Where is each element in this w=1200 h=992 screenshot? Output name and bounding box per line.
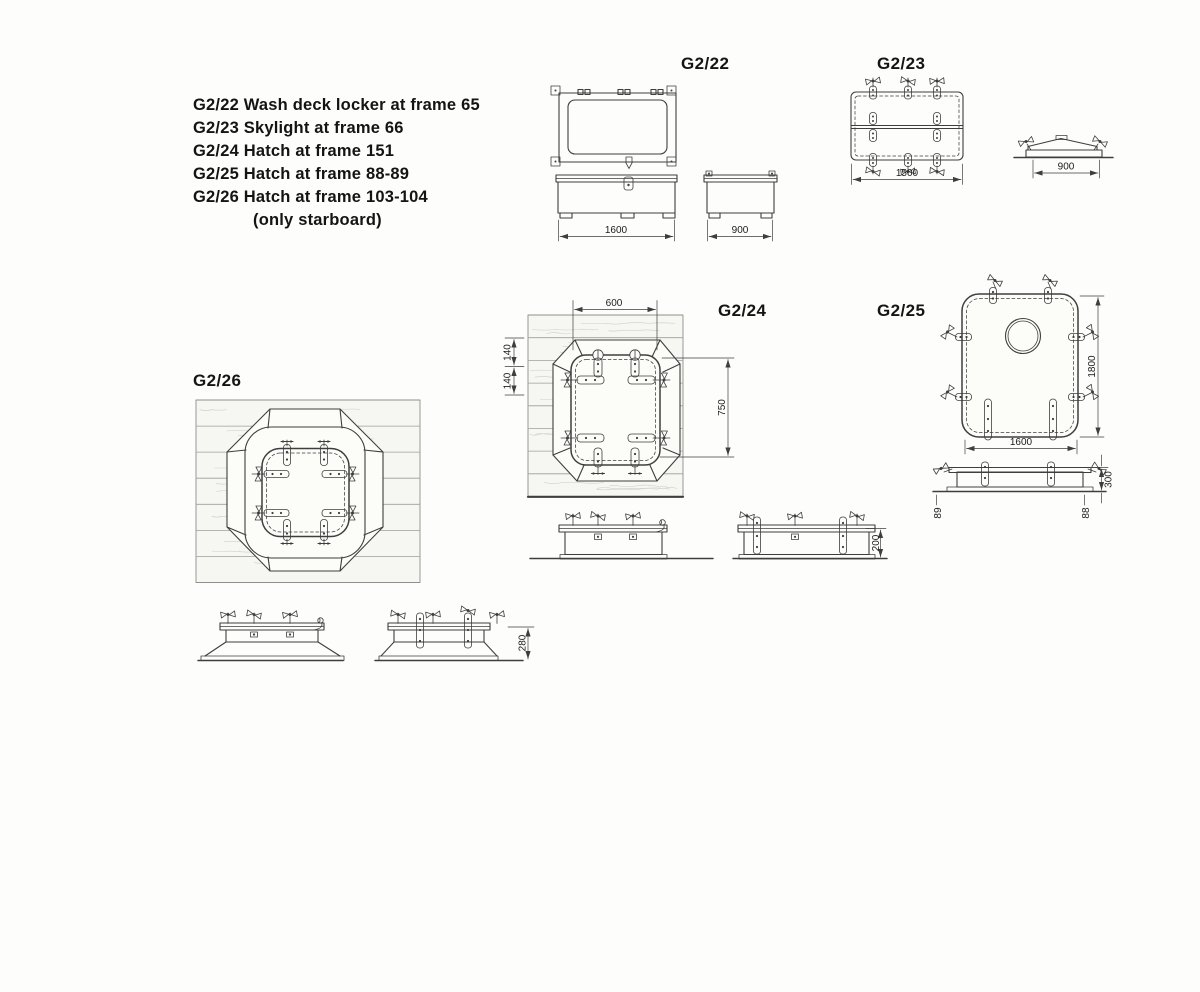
g25-frame-left: 89 [933, 507, 944, 519]
g25-frame-right: 88 [1081, 507, 1092, 519]
g22-side-view [704, 171, 777, 218]
g22-dim-width: 1600 [605, 225, 628, 236]
g25-figure: 1600 1800 300 89 88 [933, 274, 1115, 518]
g24-side-view-a [530, 511, 713, 559]
g24-dim-opening-height: 750 [717, 399, 728, 416]
g23-clamps [865, 76, 944, 176]
g23-top-view: 1500 [851, 76, 963, 184]
g24-hatch-cover [561, 350, 670, 475]
g22-figure: 1600 900 [551, 86, 777, 241]
g24-dim-plank-a: 140 [503, 344, 514, 361]
g22-front-view [556, 175, 677, 218]
g25-dim-coaming-height: 300 [1104, 471, 1115, 488]
g23-dim-width: 1500 [896, 168, 919, 179]
g26-figure: 280 [196, 400, 534, 661]
g24-dim-coaming-height: 200 [871, 534, 882, 551]
g22-dimensions: 1600 900 [559, 220, 773, 241]
g23-figure: 1500 900 [851, 76, 1113, 184]
g24-dim-opening-width: 600 [606, 298, 623, 309]
g26-dim-coaming-height: 280 [518, 634, 529, 651]
g23-side-view: 900 [1014, 136, 1113, 179]
g25-top-view: 1600 1800 [941, 274, 1104, 454]
g26-side-view-a [198, 610, 344, 661]
g25-side-view: 300 89 88 [933, 455, 1115, 519]
g26-hatch-cover [252, 440, 359, 545]
g26-side-view-b: 280 [375, 606, 534, 661]
g25-dim-height: 1800 [1087, 355, 1098, 378]
g25-dim-width: 1600 [1010, 437, 1033, 448]
drawing-canvas: 1600 900 [0, 0, 1200, 992]
g23-dim-depth: 900 [1058, 162, 1075, 173]
g22-top-view [551, 86, 676, 169]
g24-side-view-b: 200 [733, 511, 887, 559]
g22-dim-depth: 900 [732, 225, 749, 236]
scanned-plan-page: G2/22 Wash deck locker at frame 65 G2/23… [0, 0, 1200, 992]
g24-dim-plank-b: 140 [503, 372, 514, 389]
g24-figure: 600 140 140 750 [503, 298, 888, 559]
